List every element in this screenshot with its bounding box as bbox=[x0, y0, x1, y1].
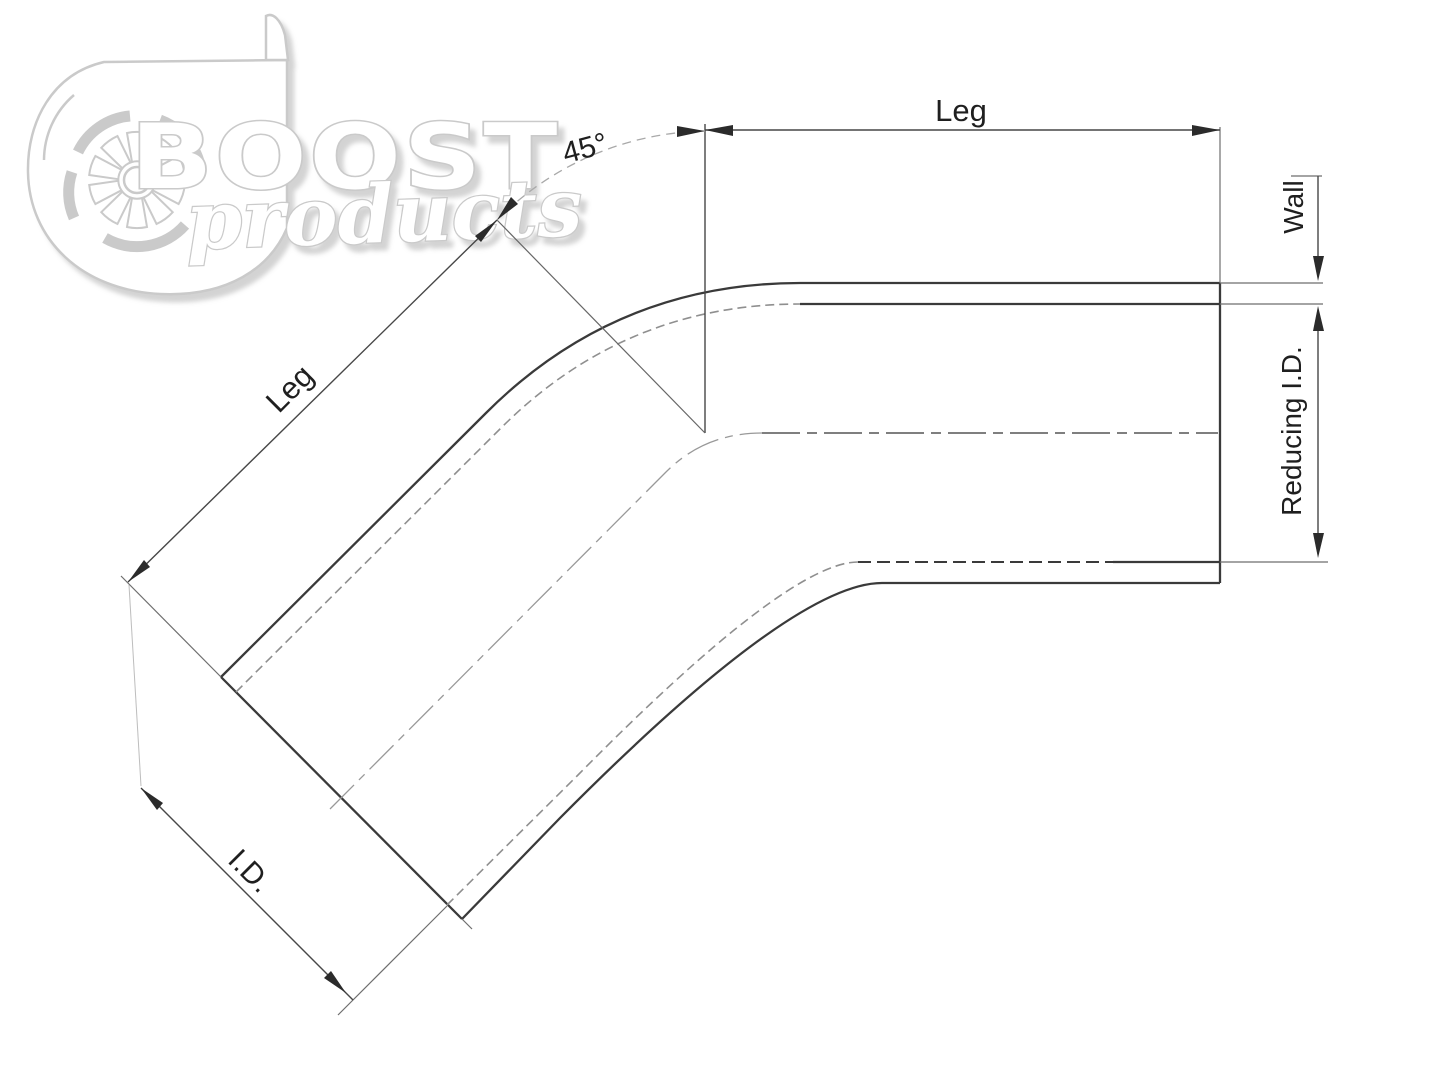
pipe-outline bbox=[221, 283, 1220, 919]
arrow-reducing-id-up bbox=[1313, 306, 1324, 331]
arrow-leg-left bbox=[705, 125, 733, 136]
arrow-arc-top bbox=[677, 126, 705, 137]
arrow-leg-right bbox=[1192, 125, 1220, 136]
pipe-hidden-lines bbox=[236, 304, 858, 905]
label-inner-diameter: I.D. bbox=[222, 843, 278, 899]
arrow-leg-diagonal-bottom bbox=[128, 560, 150, 582]
pipe-inner-top-hidden bbox=[236, 304, 800, 692]
technical-drawing-page: BOOST products bbox=[0, 0, 1445, 1084]
pipe-outer-top-edge bbox=[221, 283, 1220, 677]
arrow-id-top bbox=[141, 788, 163, 810]
boost-products-watermark: BOOST products bbox=[28, 15, 584, 294]
watermark-brand-sub-text: products bbox=[184, 160, 583, 268]
elbow-45-dimension-drawing: BOOST products bbox=[0, 0, 1445, 1084]
arrow-wall-down bbox=[1313, 256, 1324, 281]
pipe-outer-bottom-edge bbox=[462, 583, 1220, 919]
ext-id-top-faint bbox=[129, 585, 141, 786]
dim-inner-diameter bbox=[141, 788, 353, 1000]
label-leg-horizontal: Leg bbox=[935, 93, 987, 128]
centerline-diagonal bbox=[330, 433, 762, 809]
dim-axis-extension bbox=[497, 220, 705, 433]
label-reducing-id: Reducing I.D. bbox=[1276, 346, 1307, 516]
label-angle-45: 45° bbox=[559, 127, 611, 171]
ext-left-cap-overshoot bbox=[462, 919, 472, 929]
arrow-reducing-id-down bbox=[1313, 533, 1324, 558]
centerlines bbox=[330, 433, 1218, 809]
ext-id-bottom bbox=[338, 906, 447, 1015]
pipe-inner-bottom-hidden bbox=[447, 562, 858, 905]
label-wall: Wall bbox=[1278, 180, 1309, 233]
ext-left-cap bbox=[121, 576, 221, 677]
label-leg-diagonal: Leg bbox=[259, 358, 320, 419]
